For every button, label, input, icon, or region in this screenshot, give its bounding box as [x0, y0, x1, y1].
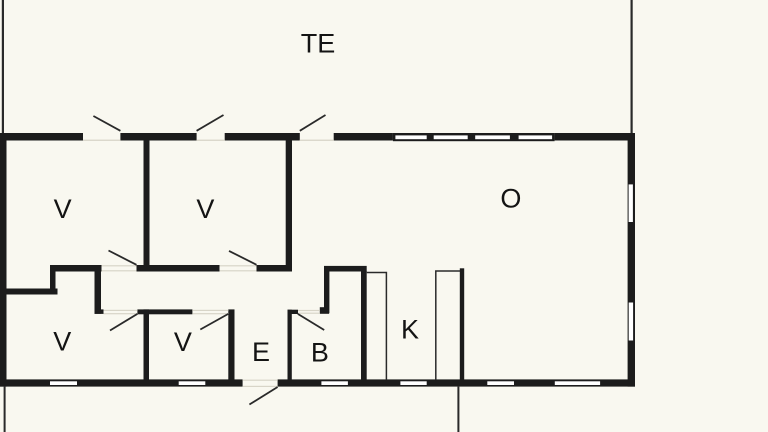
svg-text:TE: TE [301, 29, 336, 59]
svg-text:B: B [311, 338, 329, 368]
svg-text:V: V [174, 327, 192, 357]
svg-text:V: V [196, 194, 214, 224]
svg-text:O: O [500, 184, 521, 214]
svg-text:V: V [53, 326, 71, 356]
svg-text:K: K [401, 315, 419, 345]
svg-text:E: E [252, 337, 270, 367]
svg-text:V: V [54, 194, 72, 224]
